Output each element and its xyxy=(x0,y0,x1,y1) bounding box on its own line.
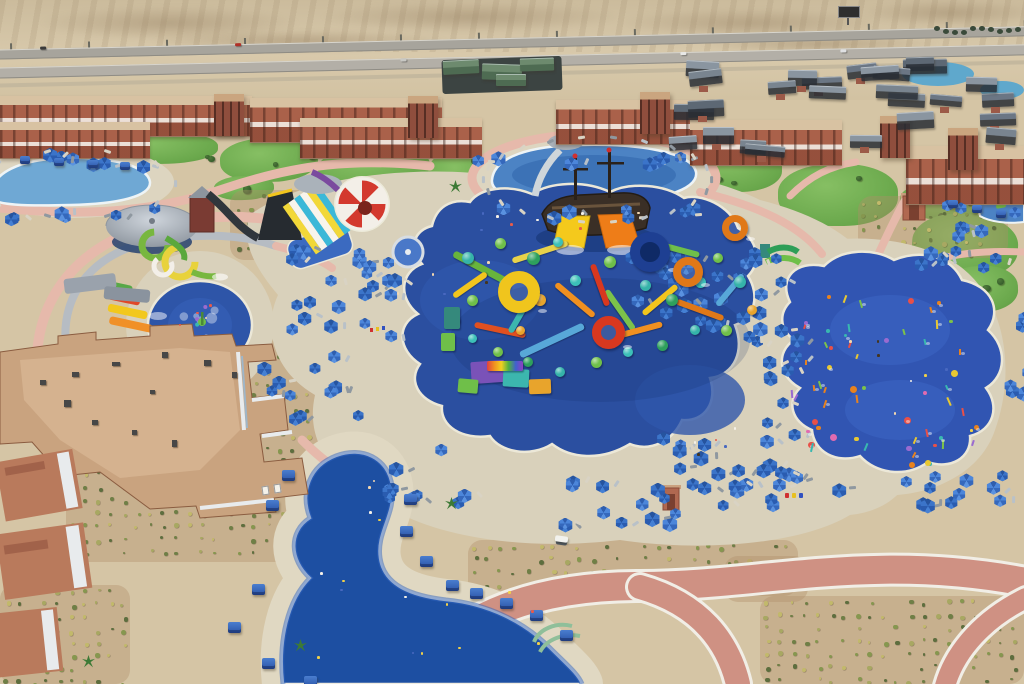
parasol xyxy=(959,473,975,488)
sun-lounger xyxy=(584,158,590,166)
parasol xyxy=(977,262,990,274)
sun-lounger xyxy=(104,213,112,218)
splash xyxy=(746,237,755,241)
person xyxy=(373,480,376,483)
person xyxy=(487,261,490,264)
sign-board xyxy=(261,486,269,496)
play-ring-slide xyxy=(592,316,625,349)
sun-lounger xyxy=(798,367,804,375)
ac-unit xyxy=(162,352,168,358)
spray-toy xyxy=(827,295,831,299)
sun-lounger xyxy=(1004,487,1011,494)
sun-lounger xyxy=(806,477,814,482)
sun-lounger xyxy=(690,465,697,469)
ac-unit xyxy=(204,360,211,366)
sun-lounger xyxy=(344,354,350,362)
splash xyxy=(862,303,866,306)
spray-toy xyxy=(884,338,889,343)
parasol xyxy=(774,324,789,338)
cabana-small xyxy=(54,158,64,166)
ac-unit xyxy=(64,400,71,407)
splash xyxy=(829,368,833,371)
parasol xyxy=(1009,207,1022,219)
cabana xyxy=(404,494,417,505)
parasol xyxy=(923,246,939,261)
person xyxy=(342,580,345,583)
sun-lounger xyxy=(789,279,797,285)
person xyxy=(485,281,488,284)
flag xyxy=(376,327,379,331)
parasol xyxy=(673,462,687,475)
sun-lounger xyxy=(519,208,526,215)
parasol xyxy=(781,364,795,377)
sun-lounger xyxy=(408,466,416,472)
play-tower-roof xyxy=(462,252,474,264)
play-block xyxy=(503,368,530,387)
sun-lounger xyxy=(126,213,133,220)
person xyxy=(734,427,737,430)
sun-lounger xyxy=(488,159,495,163)
sun-lounger xyxy=(715,452,718,459)
sun-lounger xyxy=(546,138,554,144)
sun-lounger xyxy=(767,340,774,348)
spray-toy xyxy=(909,462,915,468)
play-tower-roof xyxy=(523,357,533,367)
sign-board xyxy=(273,484,281,494)
spray-toy xyxy=(793,394,798,401)
parasol xyxy=(384,330,398,343)
chalet-wall xyxy=(797,86,806,92)
sun-lounger xyxy=(585,476,591,484)
parasol xyxy=(929,471,942,483)
play-tower-roof xyxy=(666,294,678,306)
parasol xyxy=(331,300,347,314)
chalet-wall xyxy=(776,94,785,100)
splash xyxy=(806,324,810,327)
hotel-building xyxy=(300,118,482,159)
play-tower-roof xyxy=(690,325,700,335)
parasol xyxy=(788,429,802,442)
cabana xyxy=(304,676,317,684)
chalet-roof xyxy=(703,127,734,144)
person xyxy=(397,292,400,295)
sun-lounger xyxy=(406,279,414,286)
sun-lounger xyxy=(791,400,799,406)
building-tower xyxy=(214,94,244,136)
spray-toy xyxy=(843,295,848,303)
ac-unit xyxy=(172,440,177,447)
play-slide-tube xyxy=(519,322,585,358)
play-ring-slide xyxy=(673,257,703,287)
ac-unit xyxy=(150,390,155,394)
parasol xyxy=(659,306,673,319)
spray-toy xyxy=(923,391,927,395)
person xyxy=(924,374,927,377)
hotel-building xyxy=(0,122,150,159)
building-tower xyxy=(408,96,438,138)
splash xyxy=(808,433,812,436)
parasol xyxy=(327,350,341,363)
person xyxy=(697,453,700,456)
parasol xyxy=(710,467,726,482)
sun-lounger xyxy=(849,486,856,490)
parasol xyxy=(831,483,847,498)
sun-lounger xyxy=(401,293,405,300)
building-tower xyxy=(640,92,670,134)
parasol xyxy=(989,253,1002,265)
ac-unit xyxy=(232,372,237,378)
play-block xyxy=(441,333,455,351)
sun-lounger xyxy=(632,521,640,528)
person xyxy=(910,380,913,383)
sun-lounger xyxy=(343,278,348,286)
chalet-roof xyxy=(850,134,882,147)
sun-lounger xyxy=(1007,258,1012,266)
sun-lounger xyxy=(24,214,31,221)
sun-lounger xyxy=(663,515,671,520)
person xyxy=(432,273,435,276)
spray-toy xyxy=(824,342,828,348)
play-tower-roof xyxy=(467,295,478,306)
person xyxy=(340,589,343,592)
sun-lounger xyxy=(776,438,783,445)
chalet-wall xyxy=(995,144,1004,150)
person xyxy=(196,312,199,315)
person xyxy=(970,429,973,432)
person xyxy=(317,656,320,659)
parasol xyxy=(284,390,296,401)
sun-lounger xyxy=(0,160,2,168)
flag xyxy=(382,326,385,330)
building-tower xyxy=(948,128,978,170)
parasol xyxy=(697,481,712,495)
spray-toy xyxy=(863,443,868,451)
ac-unit xyxy=(72,372,79,377)
sun-lounger xyxy=(717,486,725,493)
play-tower-roof xyxy=(640,280,651,291)
sun-lounger xyxy=(343,322,346,329)
cabana xyxy=(400,526,413,537)
sun-lounger xyxy=(486,188,491,196)
parasol xyxy=(564,157,579,171)
sun-lounger xyxy=(424,497,431,504)
play-tower-roof xyxy=(527,252,540,265)
spray-toy xyxy=(946,397,951,406)
person xyxy=(496,215,499,218)
person xyxy=(894,412,897,415)
splash xyxy=(815,388,819,391)
person xyxy=(537,642,540,645)
parasol xyxy=(382,257,395,269)
sun-lounger xyxy=(733,500,740,507)
play-tower-roof xyxy=(591,357,602,368)
sun-lounger xyxy=(281,390,285,397)
person xyxy=(446,603,449,606)
sun-lounger xyxy=(714,440,721,447)
parasol xyxy=(777,397,790,409)
chalet-roof xyxy=(982,92,1014,107)
play-tower-roof xyxy=(713,253,723,263)
ac-unit xyxy=(112,362,120,366)
sun-lounger xyxy=(704,188,709,196)
sun-lounger xyxy=(73,208,77,215)
play-block xyxy=(529,378,552,394)
sun-lounger xyxy=(782,359,790,365)
parasol xyxy=(717,500,729,511)
spray-toy xyxy=(805,360,807,365)
parasol xyxy=(256,362,272,377)
play-tower-roof xyxy=(604,256,616,268)
play-tower-roof xyxy=(516,326,525,335)
chalet-wall xyxy=(757,156,766,162)
play-block xyxy=(457,378,478,394)
parasol xyxy=(772,478,787,491)
person xyxy=(482,212,485,215)
parasol xyxy=(323,319,339,333)
chalet-roof xyxy=(767,80,796,95)
parasol xyxy=(434,444,448,457)
splash xyxy=(826,403,830,406)
spray-toy xyxy=(949,320,952,323)
splash xyxy=(916,440,920,443)
person xyxy=(724,445,727,448)
ac-unit xyxy=(92,420,98,425)
splash xyxy=(941,439,945,442)
chalet-wall xyxy=(712,144,721,150)
splash xyxy=(915,455,919,458)
cabana xyxy=(420,556,433,567)
person xyxy=(320,572,323,575)
sun-lounger xyxy=(0,200,2,208)
sun-lounger xyxy=(519,144,526,151)
chalet-roof xyxy=(985,127,1016,146)
green-roof-chalet xyxy=(443,59,480,75)
cabana xyxy=(470,588,483,599)
splash xyxy=(948,388,952,391)
chalet-wall xyxy=(991,107,1000,113)
person xyxy=(694,441,697,444)
chalet-roof xyxy=(808,85,846,100)
play-ring-slide xyxy=(722,215,748,241)
sun-lounger xyxy=(641,215,649,221)
person xyxy=(421,652,424,655)
spray-toy xyxy=(902,329,906,336)
sun-lounger xyxy=(486,164,491,172)
green-roof-chalet xyxy=(496,74,526,86)
parasol xyxy=(309,363,322,375)
aerial-waterpark-photo: Aerial drone photograph of a desert wate… xyxy=(0,0,1024,684)
play-tower-roof xyxy=(747,305,757,315)
sun-lounger xyxy=(174,180,177,187)
sun-lounger xyxy=(289,378,296,382)
spray-toy xyxy=(850,386,857,393)
cabana xyxy=(282,470,295,481)
sun-lounger xyxy=(807,338,814,345)
person xyxy=(205,317,208,320)
sun-lounger xyxy=(694,213,701,217)
parasol xyxy=(110,210,122,221)
play-tower-roof xyxy=(623,347,633,357)
person xyxy=(877,354,880,357)
parasol xyxy=(352,410,364,421)
spray-toy xyxy=(823,387,827,394)
chalet-roof xyxy=(687,99,724,118)
spray-toy xyxy=(906,446,911,451)
person xyxy=(378,519,381,522)
parasol xyxy=(996,470,1008,481)
person xyxy=(209,304,212,307)
parasol xyxy=(384,289,398,302)
parasol xyxy=(759,435,775,449)
splash xyxy=(961,352,965,355)
person xyxy=(412,652,415,655)
sun-lounger xyxy=(939,499,942,506)
spray-toy xyxy=(855,354,859,360)
splash xyxy=(939,304,943,307)
parasol xyxy=(595,480,610,494)
parasol xyxy=(761,417,773,428)
play-slide-tube xyxy=(590,263,611,306)
splash xyxy=(701,283,710,287)
cabana xyxy=(252,584,265,595)
parasol xyxy=(790,351,803,363)
sun-lounger xyxy=(791,328,798,332)
parasol xyxy=(325,275,338,287)
play-slide-tube xyxy=(554,282,596,319)
flag xyxy=(370,328,373,332)
spray-toy xyxy=(856,395,859,403)
spray-toy xyxy=(971,440,975,446)
parasol xyxy=(697,438,712,452)
sun-lounger xyxy=(710,176,713,183)
parasol xyxy=(631,294,645,307)
sun-lounger xyxy=(757,481,763,489)
recycle-bin xyxy=(785,493,789,498)
sun-lounger xyxy=(482,176,485,183)
sun-lounger xyxy=(782,460,789,468)
person xyxy=(443,293,446,296)
palm-tree xyxy=(294,639,307,652)
chalet-roof xyxy=(860,64,899,81)
spray-toy xyxy=(854,437,859,442)
person xyxy=(579,227,582,230)
cabana-small xyxy=(20,156,30,164)
play-tower-roof xyxy=(553,237,563,247)
chalet-roof xyxy=(897,111,934,130)
spray-toy xyxy=(830,434,837,441)
spray-toy xyxy=(933,444,936,447)
sun-lounger xyxy=(790,483,798,489)
spray-toy xyxy=(951,370,958,377)
spray-toy xyxy=(847,323,850,331)
splash xyxy=(938,323,942,326)
cabana-small xyxy=(120,162,130,170)
parasol xyxy=(596,506,611,520)
chalet-roof xyxy=(966,77,997,93)
cabana-small xyxy=(996,210,1006,218)
sun-lounger xyxy=(760,336,764,343)
spray-toy xyxy=(812,419,818,425)
sun-lounger xyxy=(772,289,779,296)
splash xyxy=(623,345,632,349)
chalet-roof xyxy=(876,84,918,99)
splash xyxy=(906,420,910,423)
sun-lounger xyxy=(401,334,405,341)
person xyxy=(531,610,534,613)
parasol xyxy=(644,511,661,527)
cabana xyxy=(266,500,279,511)
play-tower-roof xyxy=(570,275,581,286)
cabana-small xyxy=(972,205,982,213)
sun-lounger xyxy=(476,491,483,498)
parasol xyxy=(775,276,788,288)
play-tower-roof xyxy=(555,367,565,377)
palm-tree xyxy=(449,180,462,193)
sun-lounger xyxy=(775,422,782,429)
recycle-bin xyxy=(792,493,796,498)
sun-lounger xyxy=(376,272,384,279)
person xyxy=(508,591,511,594)
play-ring-slide xyxy=(498,271,540,313)
parasol xyxy=(291,299,304,311)
play-block xyxy=(487,361,523,371)
splash xyxy=(928,432,932,435)
parasol xyxy=(914,258,929,272)
chalet-wall xyxy=(940,107,949,113)
sun-lounger xyxy=(751,469,758,477)
sun-lounger xyxy=(610,219,617,223)
person xyxy=(480,229,483,232)
splash xyxy=(976,428,980,431)
sun-lounger xyxy=(315,312,323,318)
parasol xyxy=(950,246,962,257)
cabana xyxy=(446,580,459,591)
parasol xyxy=(656,432,671,446)
person xyxy=(404,596,407,599)
person xyxy=(510,223,513,226)
spray-toy xyxy=(826,329,830,333)
splash xyxy=(538,309,547,313)
parasol xyxy=(635,498,649,511)
play-tower-roof xyxy=(721,325,732,336)
cabana xyxy=(262,658,275,669)
spray-toy xyxy=(816,426,821,431)
cabana xyxy=(560,630,573,641)
parasol xyxy=(923,482,936,494)
person xyxy=(458,647,461,650)
ac-unit xyxy=(132,430,137,435)
sun-lounger xyxy=(578,219,585,223)
play-block xyxy=(444,307,460,329)
cabana-small xyxy=(948,200,958,208)
spray-toy xyxy=(925,460,931,466)
parasol xyxy=(297,312,312,326)
ac-unit xyxy=(40,380,46,385)
person xyxy=(637,212,640,215)
person xyxy=(849,340,852,343)
sun-lounger xyxy=(807,355,814,362)
chalet-wall xyxy=(860,147,869,153)
sun-lounger xyxy=(400,487,407,492)
green-roof-chalet xyxy=(520,57,554,71)
sun-lounger xyxy=(668,208,675,215)
person xyxy=(179,324,182,327)
spray-toy xyxy=(908,298,915,305)
person xyxy=(536,219,539,222)
cabana xyxy=(500,598,513,609)
person xyxy=(877,340,880,343)
splash xyxy=(926,342,930,345)
